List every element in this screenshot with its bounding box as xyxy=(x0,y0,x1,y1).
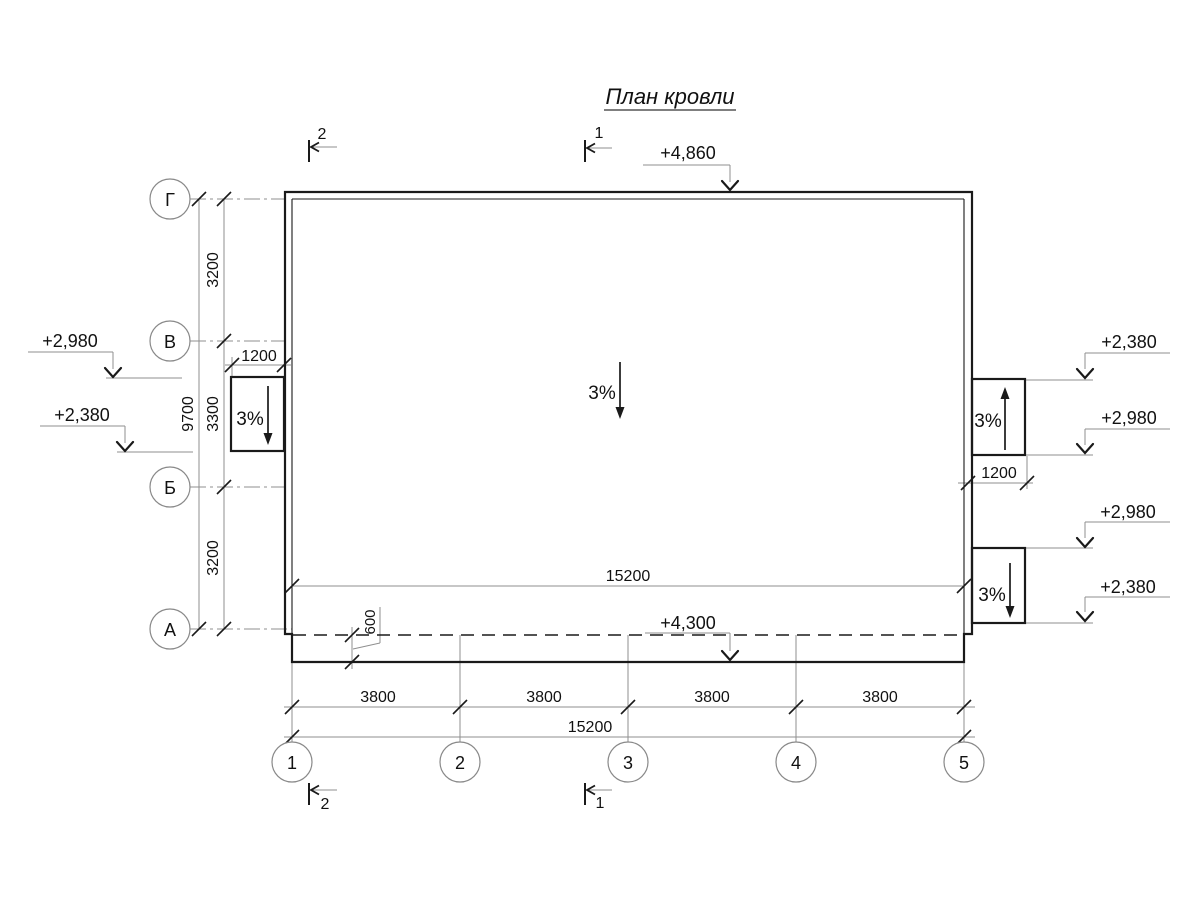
dim-roof-length: 15200 xyxy=(606,568,651,585)
row-label-a: А xyxy=(164,620,176,640)
leader-right-2 xyxy=(1025,429,1170,455)
elevation-arrow-icon xyxy=(117,442,133,451)
dim-rows-total: 9700 xyxy=(180,396,197,432)
col-label-4: 4 xyxy=(791,753,801,773)
elevation-roof-top: +4,860 xyxy=(660,143,716,163)
drawing-title: План кровли xyxy=(605,84,734,109)
dim-col-span-1: 3800 xyxy=(360,689,396,706)
elevation-arrow-icon xyxy=(1077,612,1093,621)
leader-left-lower xyxy=(40,426,193,452)
labels: План кровли Г В Б А 1 2 3 4 5 2 1 2 1 +4… xyxy=(42,84,1157,813)
elevation-arrow-icon xyxy=(722,181,738,190)
section-label-bottom-left: 2 xyxy=(321,796,330,813)
leader-right-1 xyxy=(1025,353,1170,380)
dim-left-outlet: 1200 xyxy=(241,348,277,365)
arrow-down-icon xyxy=(264,433,273,445)
row-label-g: Г xyxy=(165,190,175,210)
col-label-5: 5 xyxy=(959,753,969,773)
elevation-arrow-icon xyxy=(105,368,121,377)
dim-cols-total: 15200 xyxy=(568,719,613,736)
row-label-b: Б xyxy=(164,478,176,498)
elevation-arrow-icon xyxy=(1077,444,1093,453)
elevation-canopy: +4,300 xyxy=(660,613,716,633)
drawing-canvas: План кровли Г В Б А 1 2 3 4 5 2 1 2 1 +4… xyxy=(0,0,1200,900)
roof-outer-edge xyxy=(285,192,972,662)
roof-outline xyxy=(231,192,1025,662)
leader-right-4 xyxy=(1025,597,1170,623)
elevation-arrow-icon xyxy=(722,651,738,660)
arrow-down-icon xyxy=(1006,606,1015,618)
elevation-arrow-icon xyxy=(1077,538,1093,547)
row-label-v: В xyxy=(164,332,176,352)
dim-canopy-width: 600 xyxy=(362,609,379,634)
col-label-2: 2 xyxy=(455,753,465,773)
elevation-right-1: +2,380 xyxy=(1101,332,1157,352)
slope-label-left: 3% xyxy=(236,409,264,430)
elevation-left-lower: +2,380 xyxy=(54,405,110,425)
leader-right-3 xyxy=(1025,522,1170,548)
elevation-right-2: +2,980 xyxy=(1101,408,1157,428)
dim-row-span-top: 3200 xyxy=(205,252,222,288)
section-label-top-center: 1 xyxy=(595,125,604,142)
section-label-top-left: 2 xyxy=(318,126,327,143)
slope-label-right-upper: 3% xyxy=(974,411,1002,432)
dim-row-span-bottom: 3200 xyxy=(205,540,222,576)
dim-col-span-2: 3800 xyxy=(526,689,562,706)
dim-row-span-mid: 3300 xyxy=(205,396,222,432)
section-label-bottom-center: 1 xyxy=(596,795,605,812)
dim-col-span-3: 3800 xyxy=(694,689,730,706)
roof-plan-drawing: План кровли Г В Б А 1 2 3 4 5 2 1 2 1 +4… xyxy=(0,0,1200,900)
elevation-right-4: +2,380 xyxy=(1100,577,1156,597)
col-label-3: 3 xyxy=(623,753,633,773)
dimension-lines xyxy=(199,199,1033,737)
leader-roof-top xyxy=(643,165,730,182)
dim-col-span-4: 3800 xyxy=(862,689,898,706)
elevation-left-upper: +2,980 xyxy=(42,331,98,351)
slope-label-center: 3% xyxy=(588,383,616,404)
elevation-right-3: +2,980 xyxy=(1100,502,1156,522)
arrow-up-icon xyxy=(1001,387,1010,399)
col-label-1: 1 xyxy=(287,753,297,773)
grid-axis-lines xyxy=(190,199,964,742)
axis-extensions-bottom xyxy=(292,633,964,742)
grid-bubbles xyxy=(150,179,984,782)
arrow-down-icon xyxy=(616,407,625,419)
slope-label-right-lower: 3% xyxy=(978,585,1006,606)
elevation-arrow-icon xyxy=(1077,369,1093,378)
dim-right-outlet: 1200 xyxy=(981,465,1017,482)
